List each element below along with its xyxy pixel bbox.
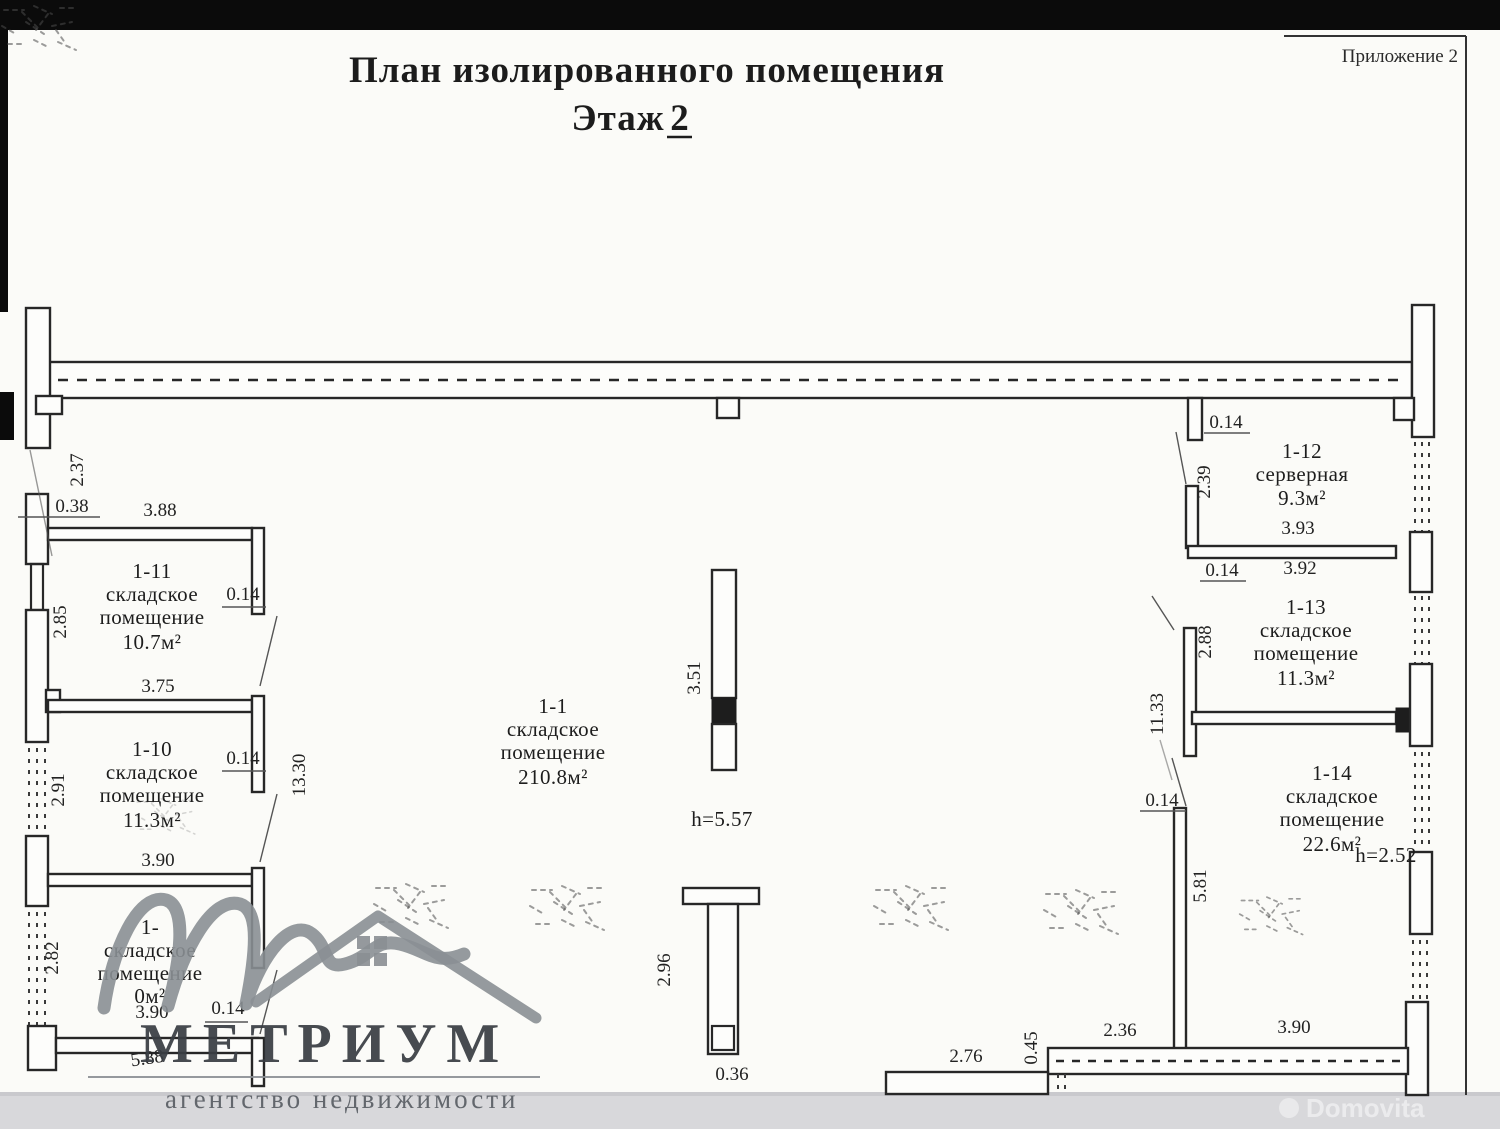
dim-left-offset: 0.38: [55, 496, 88, 517]
dim-r11-depth: 2.85: [50, 605, 71, 638]
svg-text:22.6м²: 22.6м²: [1303, 832, 1362, 856]
svg-text:складское: складское: [1260, 618, 1352, 642]
svg-text:1-: 1-: [141, 915, 159, 939]
ceiling-height-1-14: h=2.52: [1355, 843, 1417, 867]
watermark-brand: МЕТРИУМ: [140, 1013, 509, 1075]
stamp-mark: [1044, 890, 1118, 934]
dimension-labels: 2.37 0.38 3.88 2.85 0.14 3.75 2.91 0.14 …: [42, 412, 1317, 1085]
dim-r12-wall-top: 0.14: [1209, 412, 1243, 433]
stamp-mark: [874, 886, 948, 930]
room-1-12-label: 1-12 серверная 9.3м²: [1256, 439, 1349, 510]
svg-text:11.3м²: 11.3м²: [1277, 666, 1335, 690]
dim-r12-depth: 2.39: [1194, 465, 1215, 498]
dim-bottom-center-width: 2.76: [949, 1046, 982, 1067]
svg-text:помещение: помещение: [1280, 807, 1385, 831]
room-1-14-label: 1-14 складское помещение 22.6м² h=2.52: [1280, 761, 1417, 867]
floor-plan-drawing: План изолированного помещения Этаж 2 При…: [0, 0, 1500, 1129]
dim-r13-top-width: 3.92: [1283, 558, 1316, 579]
dim-bottom-step: 0.45: [1021, 1031, 1042, 1064]
dim-bottom-right-width2: 3.90: [1277, 1017, 1310, 1038]
svg-text:9.3м²: 9.3м²: [1278, 486, 1326, 510]
dim-top-left-vertical: 2.37: [67, 453, 88, 486]
svg-text:складское: складское: [507, 717, 599, 741]
room-1-10-label: 1-10 складское помещение 11.3м²: [100, 737, 205, 832]
svg-text:складское: складское: [1286, 784, 1378, 808]
portal-ghost-text: Domovita: [1306, 1093, 1425, 1123]
svg-text:помещение: помещение: [100, 605, 205, 629]
svg-text:складское: складское: [106, 582, 198, 606]
dim-r10-wall: 0.14: [226, 748, 260, 769]
header: План изолированного помещения Этаж 2 При…: [349, 46, 1458, 139]
dim-r11-wall: 0.14: [226, 584, 260, 605]
dim-r11-width: 3.88: [143, 500, 176, 521]
scanned-floor-plan-page: План изолированного помещения Этаж 2 При…: [0, 0, 1500, 1129]
dim-hall-right-length: 11.33: [1147, 693, 1168, 735]
floor-label: Этаж: [571, 98, 664, 139]
dim-bottom-right-width1: 2.36: [1103, 1020, 1136, 1041]
dim-column-top: 3.51: [684, 661, 705, 694]
watermark-tagline: агентство недвижимости: [165, 1084, 518, 1114]
page-title: План изолированного помещения: [349, 50, 945, 91]
room-1-13-label: 1-13 складское помещение 11.3м²: [1254, 595, 1359, 690]
svg-text:1-1: 1-1: [538, 694, 567, 718]
dim-r10-bottom-width: 3.90: [141, 850, 174, 871]
svg-text:1-13: 1-13: [1286, 595, 1326, 619]
annex-label: Приложение 2: [1342, 46, 1458, 67]
stamp-mark: [530, 886, 604, 930]
svg-text:помещение: помещение: [1254, 641, 1359, 665]
dim-r13-depth: 2.88: [1195, 625, 1216, 658]
svg-text:помещение: помещение: [100, 783, 205, 807]
floor-number: 2: [670, 98, 690, 139]
portal-dot-icon: [1279, 1098, 1299, 1118]
svg-text:складское: складское: [106, 760, 198, 784]
dim-r12-width: 3.93: [1281, 518, 1314, 539]
dim-hall-left-length: 13.30: [289, 754, 310, 797]
dim-r12-wall-bottom: 0.14: [1205, 560, 1239, 581]
ceiling-height-1-1: h=5.57: [691, 807, 753, 831]
svg-text:помещение: помещение: [501, 740, 606, 764]
dim-r10-depth: 2.91: [48, 773, 69, 806]
dim-r9-depth: 2.82: [42, 941, 63, 974]
svg-text:10.7м²: 10.7м²: [123, 630, 182, 654]
svg-text:1-12: 1-12: [1282, 439, 1322, 463]
svg-text:1-11: 1-11: [132, 559, 171, 583]
svg-text:11.3м²: 11.3м²: [123, 808, 181, 832]
svg-text:серверная: серверная: [1256, 462, 1349, 486]
svg-text:210.8м²: 210.8м²: [518, 765, 588, 789]
svg-text:1-10: 1-10: [132, 737, 172, 761]
dim-column-bottom-width: 0.36: [715, 1064, 748, 1085]
dim-r14-depth: 5.81: [1190, 869, 1211, 902]
dim-r14-wall: 0.14: [1145, 790, 1179, 811]
dim-r11-bottom-width: 3.75: [141, 676, 174, 697]
scan-artifacts: [0, 0, 1500, 1129]
dim-column-bottom-height: 2.96: [654, 953, 675, 986]
room-1-11-label: 1-11 складское помещение 10.7м²: [100, 559, 205, 654]
stamp-mark: [1240, 897, 1303, 934]
svg-text:1-14: 1-14: [1312, 761, 1352, 785]
